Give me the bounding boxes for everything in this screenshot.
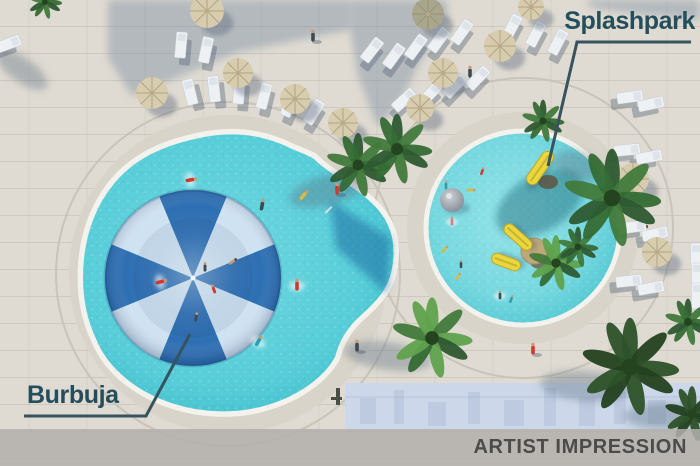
pool-ladder bbox=[331, 397, 342, 400]
facade-detail bbox=[504, 400, 524, 426]
facade-detail bbox=[579, 398, 595, 426]
artist-impression-bar: ARTIST IMPRESSION bbox=[0, 429, 700, 466]
facade-detail bbox=[360, 398, 376, 424]
person bbox=[445, 181, 448, 190]
label-burbuja: Burbuja bbox=[27, 381, 119, 410]
facade-detail bbox=[394, 390, 404, 424]
facade-detail bbox=[428, 402, 446, 426]
umbrella-pole-top bbox=[191, 276, 196, 281]
person bbox=[467, 189, 476, 192]
pool-ladder bbox=[336, 388, 340, 405]
person bbox=[460, 260, 463, 268]
person bbox=[204, 262, 207, 271]
spray-dome bbox=[440, 188, 464, 212]
artist-impression-render: Splashpark Burbuja ARTIST IMPRESSION bbox=[0, 0, 700, 466]
artist-impression-text: ARTIST IMPRESSION bbox=[473, 436, 700, 459]
label-splashpark: Splashpark bbox=[564, 7, 695, 36]
